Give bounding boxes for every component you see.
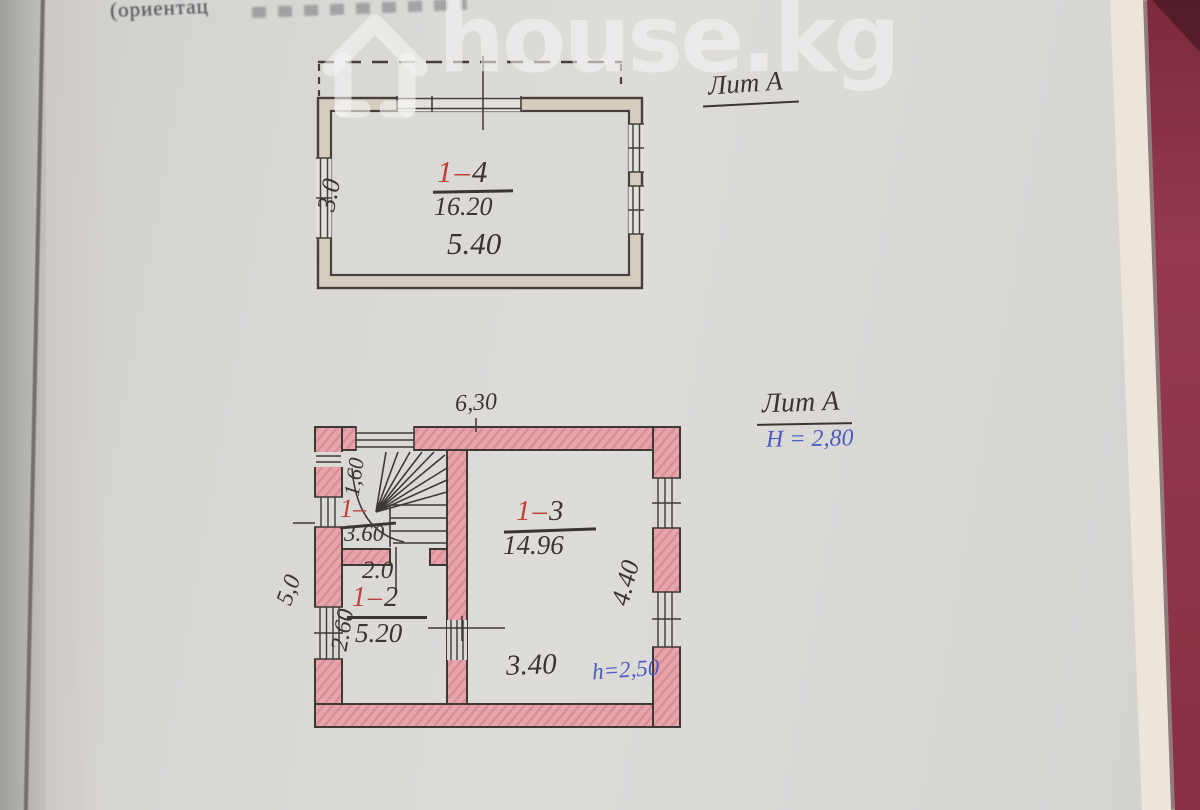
- upper-room-number: 1–4: [437, 156, 490, 187]
- lower-liter-label: Лит А: [762, 388, 840, 419]
- faded-text-smudge: [252, 0, 467, 18]
- room3-bottom-dimension: 3.40: [506, 650, 558, 681]
- upper-height-dimension: 3.0: [313, 176, 345, 213]
- floor-plan-document-photo: (ориентац: [0, 0, 1200, 810]
- lower-floor-height-note: H = 2,80: [766, 426, 854, 452]
- printed-header-text: (ориентац: [109, 0, 209, 23]
- room2-number: 1–2: [352, 584, 400, 612]
- upper-room-area: 16.20: [434, 194, 493, 220]
- room3-number-dark: 3: [549, 495, 566, 527]
- stair-width-dimension: 1,60: [341, 456, 368, 497]
- lower-top-dimension: 6,30: [454, 390, 497, 416]
- room3-area: 14.96: [503, 532, 564, 559]
- page-left-soft-shadow: [45, 0, 105, 810]
- room2-number-red: 1–: [352, 582, 384, 613]
- upper-liter-underline: [703, 100, 799, 107]
- room2-top-dimension: 2.0: [362, 558, 393, 583]
- room3-ceiling-height-note: h=2,50: [591, 656, 660, 684]
- upper-liter-label: Лит А: [707, 67, 783, 99]
- upper-width-dimension: 5.40: [447, 228, 501, 259]
- upper-room-number-dark: 4: [472, 154, 490, 189]
- stair-room-area: 3.60: [344, 522, 384, 545]
- lower-floor-plan-drawing: [250, 378, 720, 750]
- upper-floor-plan-drawing: [280, 45, 710, 300]
- room3-number-red: 1–: [516, 495, 549, 527]
- upper-room-number-red: 1–: [437, 154, 472, 189]
- room2-number-dark: 2: [384, 582, 400, 613]
- room2-area: 5.20: [355, 620, 402, 647]
- room3-number: 1–3: [516, 497, 566, 526]
- stair-room-number: 1–: [340, 496, 366, 522]
